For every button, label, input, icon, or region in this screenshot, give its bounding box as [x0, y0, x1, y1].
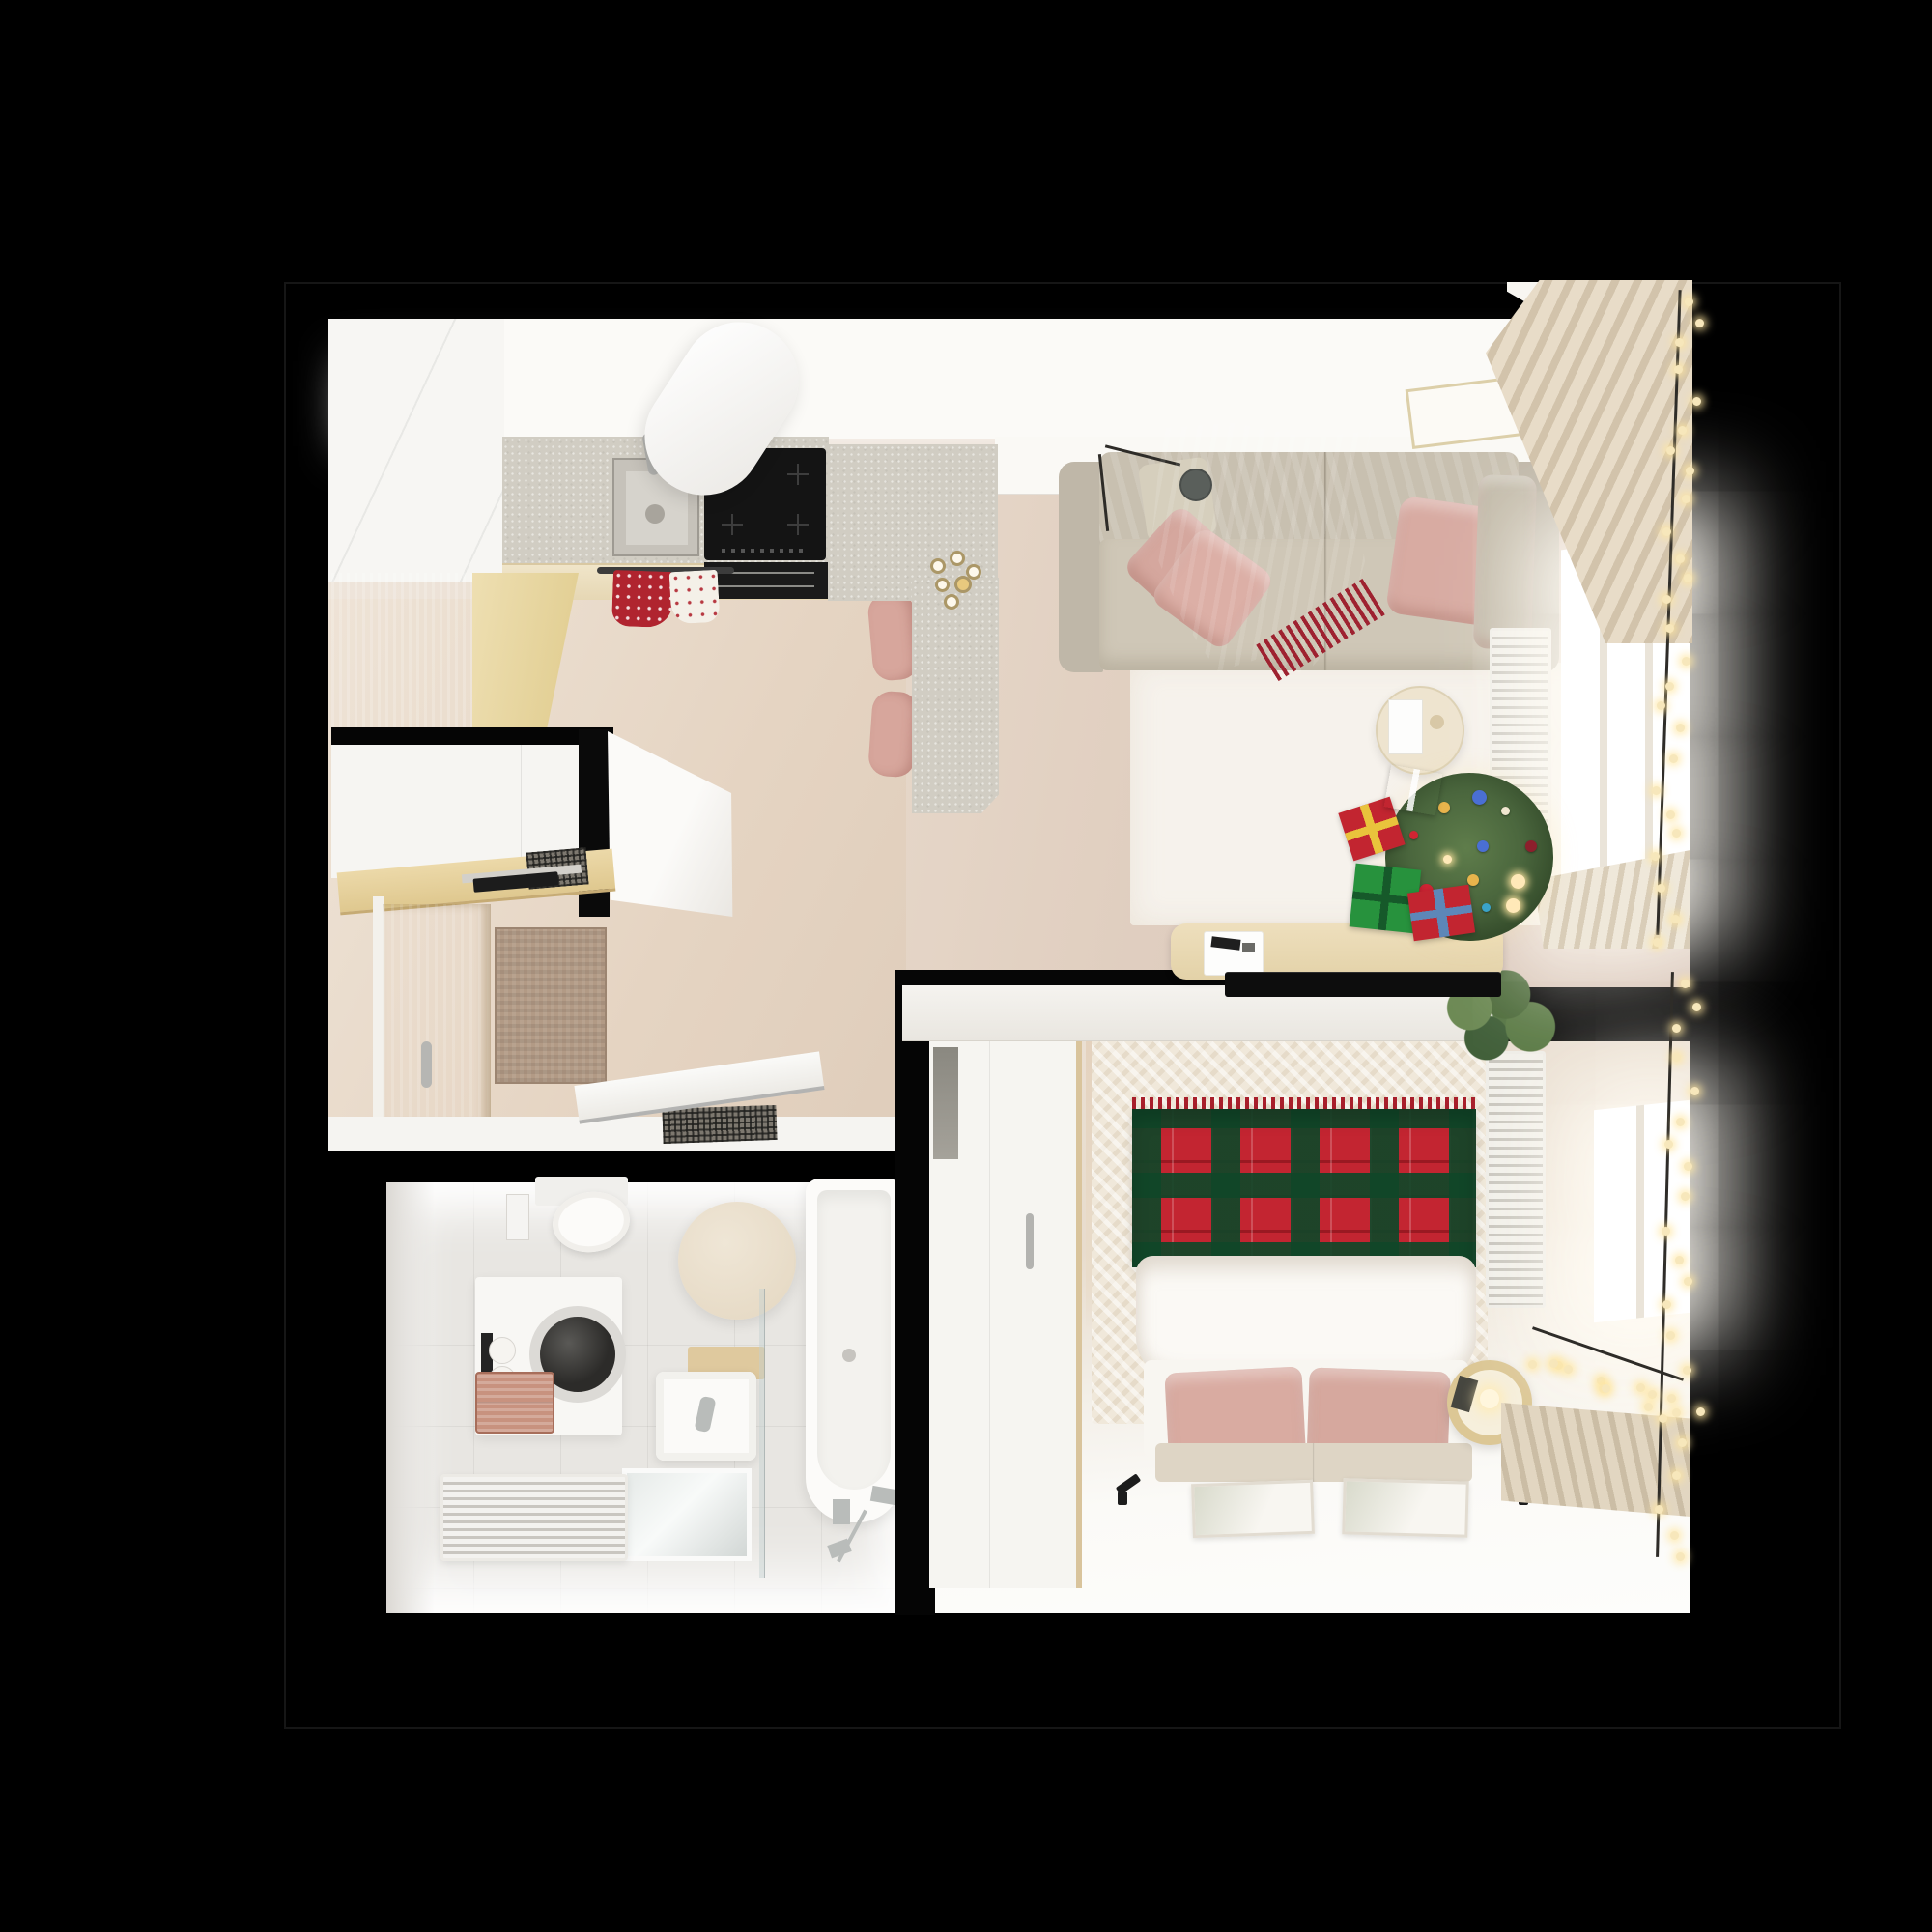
bedroom-radiator — [1486, 1051, 1546, 1308]
string-light-bulb — [1672, 1471, 1681, 1480]
kitchen-island-peninsula — [912, 578, 999, 813]
string-light-bulb — [1652, 786, 1661, 795]
entrance-door-handle — [421, 1041, 432, 1088]
arc-lamp-shade — [1179, 469, 1212, 501]
bathroom-wall-shade — [386, 1182, 435, 1613]
tree-ornament — [1501, 807, 1510, 815]
tree-ornament — [1443, 855, 1452, 864]
string-light-bulb — [1653, 938, 1662, 947]
toilet-paper-roll — [489, 1337, 516, 1364]
string-light-bulb — [1655, 1505, 1663, 1514]
string-light-bulb — [1690, 1087, 1699, 1095]
string-light-bulb — [1662, 595, 1671, 604]
wall-spotlight — [1114, 1476, 1151, 1507]
tree-ornament — [1472, 790, 1487, 805]
coffee-table-cup — [1430, 715, 1444, 729]
candle-holder — [935, 578, 950, 592]
hall-cabinet-top-edge — [331, 727, 613, 745]
kitchen-tall-cabinets — [328, 319, 504, 582]
tree-ornament — [1477, 840, 1489, 852]
string-light-bulb — [1672, 1053, 1681, 1062]
string-light-bulb — [1685, 298, 1693, 306]
towel-radiator — [440, 1474, 628, 1561]
tree-ornament — [1482, 903, 1491, 912]
bathroom-doormat — [662, 1105, 777, 1144]
string-light-bulb — [1672, 829, 1681, 838]
bathtub-drain — [842, 1349, 856, 1362]
sofa-armrest — [1059, 462, 1103, 672]
string-light-bulb — [1696, 1407, 1705, 1416]
tree-ornament — [1525, 840, 1537, 852]
tartan-blanket — [1132, 1109, 1476, 1267]
string-light-bulb — [1675, 338, 1684, 347]
string-light-bulb — [1676, 724, 1685, 732]
string-light-bulb — [1676, 1552, 1685, 1561]
tree-ornament — [1467, 874, 1479, 886]
gift-box-green-lid — [1384, 765, 1443, 816]
string-light-bulb — [1669, 754, 1678, 763]
hall-south-wall — [328, 1117, 906, 1153]
string-light-bulb — [1657, 701, 1665, 710]
round-mirror — [678, 1202, 796, 1320]
candle-holder — [944, 594, 959, 610]
tree-ornament — [1511, 874, 1525, 889]
string-light-bulb — [1636, 1383, 1645, 1392]
string-light-bulb — [1662, 527, 1671, 536]
laundry-baskets — [475, 1372, 554, 1434]
bedroom-window — [1594, 1100, 1690, 1323]
media-device — [1242, 943, 1255, 952]
wardrobe-handle — [1026, 1213, 1034, 1269]
string-light-bulb — [1657, 884, 1665, 893]
shower-glass — [759, 1289, 765, 1578]
picture-frame — [1342, 1478, 1468, 1537]
string-light-bulb — [1564, 1365, 1573, 1374]
string-light-bulb — [1676, 554, 1685, 563]
tree-ornament — [1438, 802, 1450, 813]
wardrobe-open-slot — [933, 1047, 958, 1159]
coffee-table-book — [1388, 699, 1423, 754]
table-lamp — [1480, 1389, 1499, 1408]
string-light-bulb — [1549, 1359, 1558, 1368]
bathroom-west-wall — [328, 1151, 386, 1615]
string-light-bulb — [1682, 657, 1690, 666]
candle-holder-lit — [954, 576, 972, 593]
string-light-bulb — [1644, 1403, 1653, 1411]
bed-bench — [1155, 1443, 1472, 1482]
shower-tray — [622, 1468, 752, 1561]
tan-cabinet — [331, 573, 472, 729]
string-light-bulb — [1692, 1003, 1701, 1011]
tree-ornament — [1409, 831, 1418, 839]
white-kitchen-towel — [669, 570, 721, 625]
entrance-door — [383, 904, 491, 1126]
bar-stool — [867, 690, 920, 778]
red-kitchen-towel — [611, 570, 673, 628]
north-wall — [328, 319, 1565, 439]
string-light-bulb — [1670, 1531, 1679, 1540]
string-light-bulb — [1665, 624, 1674, 633]
string-light-bulb — [1667, 1394, 1676, 1403]
string-light-bulb — [1686, 467, 1694, 475]
candle-holder — [930, 558, 946, 574]
light-switch — [506, 1194, 529, 1240]
apartment-render — [0, 0, 1932, 1932]
candle-holder — [950, 551, 965, 566]
doormat — [495, 927, 607, 1084]
tv — [1225, 972, 1501, 997]
gift-box-red-blue-bow — [1407, 885, 1475, 941]
sink-drain — [645, 504, 665, 524]
string-light-bulb — [1672, 1024, 1681, 1033]
sofa-pillow-grey — [1473, 474, 1537, 650]
string-light-bulb — [1681, 980, 1690, 988]
bath-mixer — [833, 1499, 850, 1524]
string-light-bulb — [1528, 1360, 1537, 1369]
picture-frame — [1191, 1480, 1315, 1538]
tree-ornament — [1506, 898, 1520, 913]
bathtub-interior — [817, 1190, 891, 1490]
